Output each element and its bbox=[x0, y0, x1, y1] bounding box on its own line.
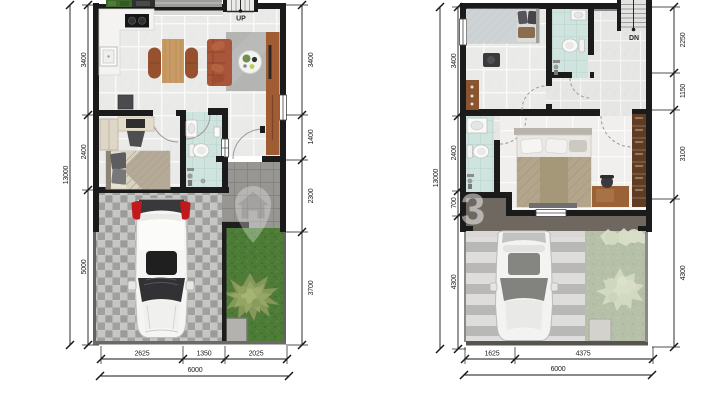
svg-text:1400: 1400 bbox=[308, 129, 315, 144]
svg-text:3400: 3400 bbox=[81, 52, 88, 67]
svg-text:2625: 2625 bbox=[135, 351, 150, 358]
svg-text:3: 3 bbox=[461, 185, 485, 234]
svg-text:6000: 6000 bbox=[188, 367, 203, 374]
svg-text:4375: 4375 bbox=[576, 351, 591, 358]
svg-text:4300: 4300 bbox=[451, 274, 458, 289]
svg-text:13000: 13000 bbox=[63, 165, 70, 184]
svg-text:2400: 2400 bbox=[81, 144, 88, 159]
svg-text:13000: 13000 bbox=[433, 168, 440, 187]
svg-text:2300: 2300 bbox=[308, 188, 315, 203]
svg-text:2400: 2400 bbox=[451, 145, 458, 160]
svg-text:3400: 3400 bbox=[451, 53, 458, 68]
svg-text:2250: 2250 bbox=[680, 32, 687, 47]
svg-text:4300: 4300 bbox=[680, 265, 687, 280]
svg-text:3400: 3400 bbox=[308, 52, 315, 67]
svg-text:1150: 1150 bbox=[680, 84, 687, 99]
svg-text:1350: 1350 bbox=[197, 351, 212, 358]
svg-text:700: 700 bbox=[451, 197, 458, 208]
svg-text:3700: 3700 bbox=[308, 280, 315, 295]
svg-text:1625: 1625 bbox=[485, 351, 500, 358]
svg-text:3100: 3100 bbox=[680, 146, 687, 161]
svg-text:6000: 6000 bbox=[551, 366, 566, 373]
svg-text:2025: 2025 bbox=[249, 351, 264, 358]
svg-text:5000: 5000 bbox=[81, 259, 88, 274]
svg-text:UP: UP bbox=[236, 16, 246, 23]
svg-text:DN: DN bbox=[629, 35, 639, 42]
